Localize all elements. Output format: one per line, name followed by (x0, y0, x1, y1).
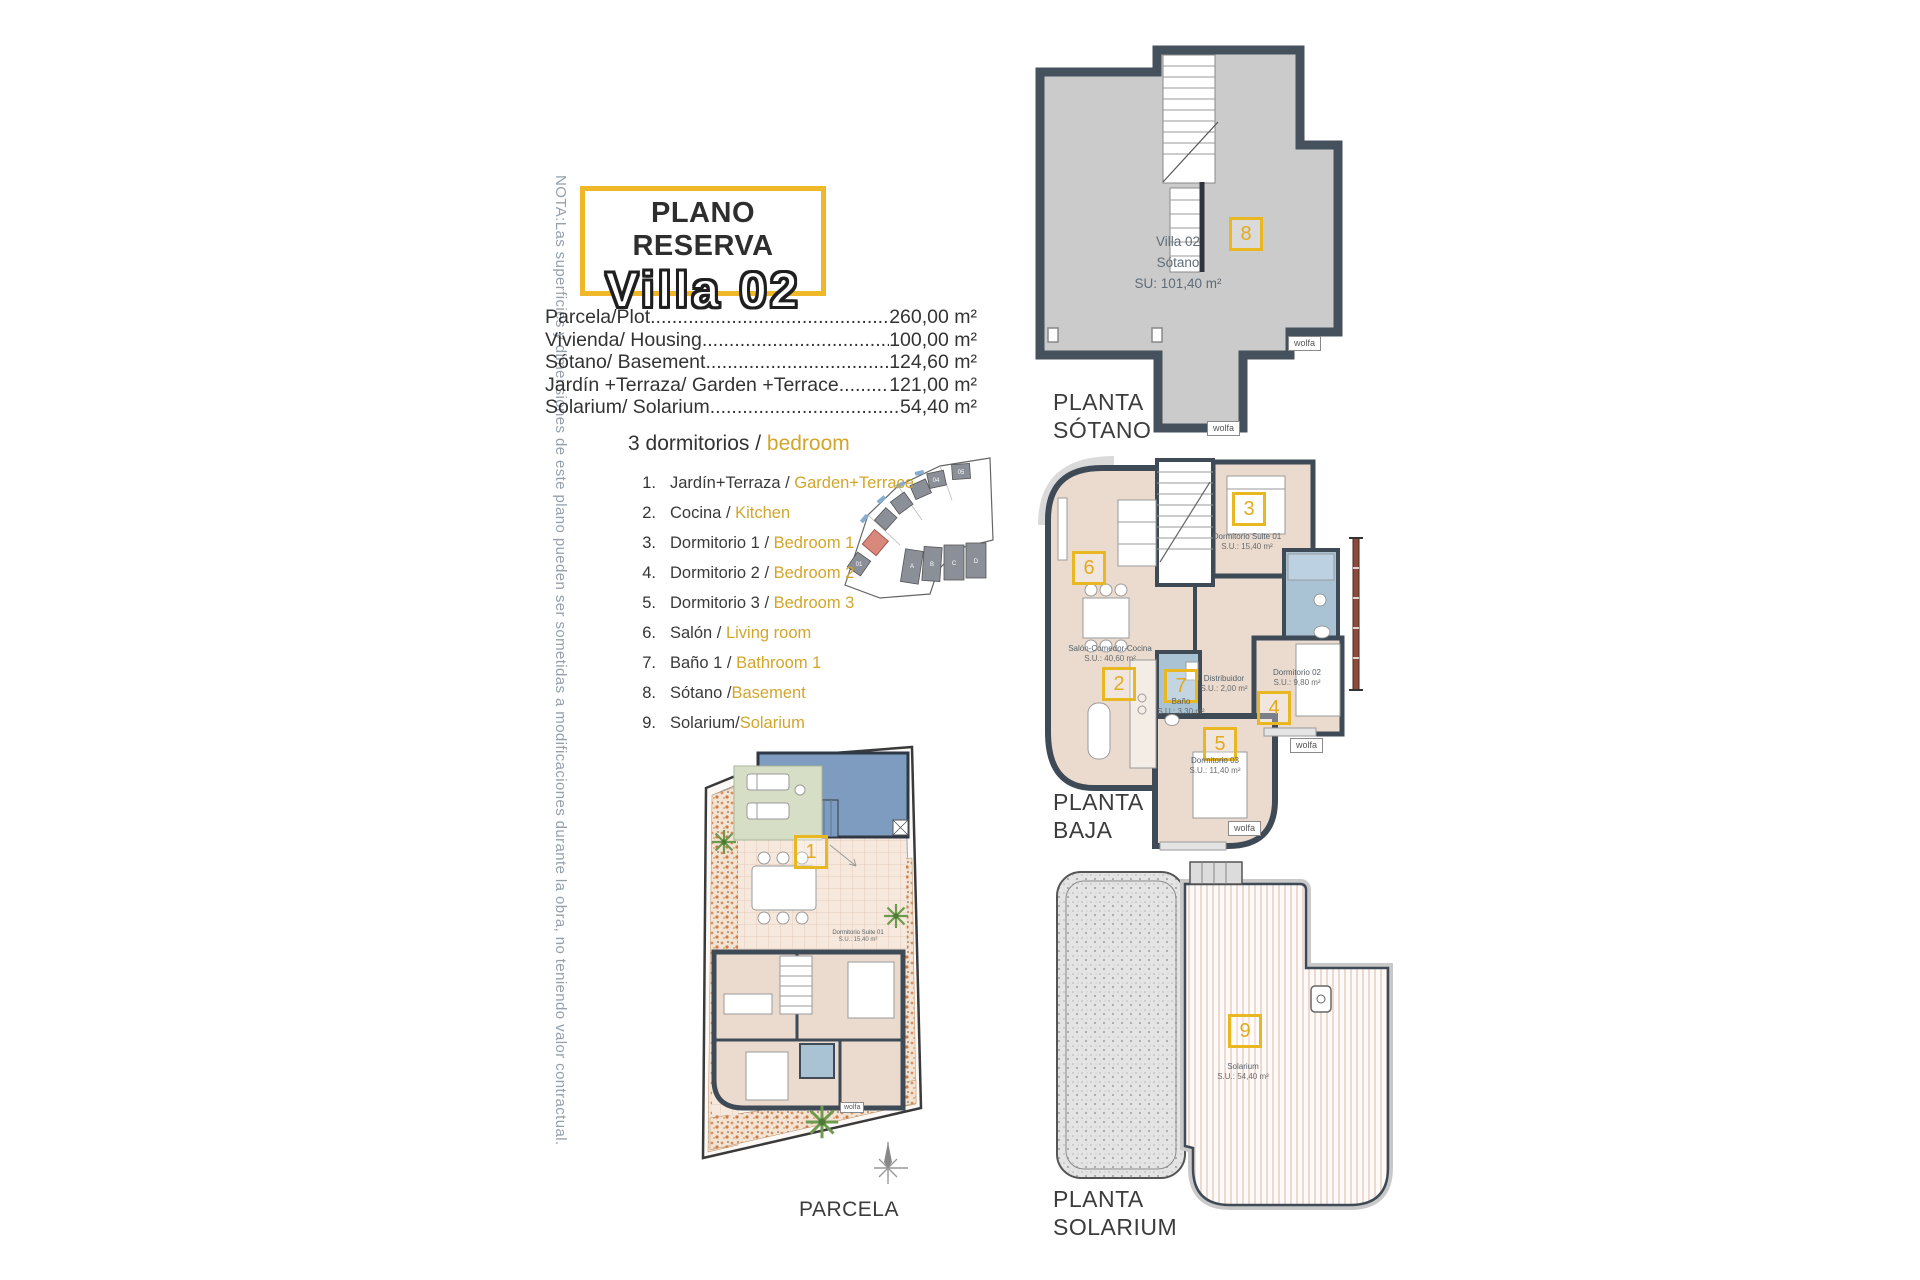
label-line: SU: 101,40 m² (1108, 274, 1248, 295)
title-box: PLANO RESERVA Villa 02 (580, 186, 826, 296)
area-summary: Parcela/Plot 260,00 m² Vivienda/ Housing… (545, 306, 977, 419)
window-sill (1264, 728, 1316, 736)
room-label-suite: Dormitorio Suite 01 S.U.: 15,40 m² (1197, 532, 1297, 553)
room-label-bath: Baño S.U.: 3,30 m² (1151, 697, 1211, 718)
room-area: S.U.: 54,40 m² (1193, 1072, 1293, 1082)
room-area: S.U.: 3,30 m² (1151, 707, 1211, 717)
room-name: Solarium (1193, 1062, 1293, 1072)
minimap-label: 05 (958, 470, 965, 476)
tv-unit-icon (1058, 498, 1067, 560)
legend-en: Bedroom 3 (774, 594, 855, 612)
summary-value: 124,60 m² (889, 351, 977, 374)
sofa-icon (1118, 500, 1156, 566)
legend-num: 9. (628, 708, 656, 738)
legend-en: Living room (726, 624, 811, 642)
room-name: Dormitorio 02 (1257, 668, 1337, 678)
room-area: S.U.: 11,40 m² (1165, 766, 1265, 776)
legend-en: Bedroom 1 (774, 534, 855, 552)
legend-num: 2. (628, 498, 656, 528)
brand-logo: wolfa (1207, 421, 1240, 436)
legend-num: 6. (628, 618, 656, 648)
brand-logo: wolfa (840, 1102, 864, 1113)
legend-es: Jardín+Terraza / (670, 474, 794, 492)
room-area: S.U.: 15,40 m² (1197, 542, 1297, 552)
minimap-label: C (952, 561, 957, 567)
room-name: Dormitorio Suite 01 (1197, 532, 1297, 542)
legend-item: 6.Salón / Living room (628, 618, 914, 648)
legend-num: 5. (628, 588, 656, 618)
plot-plan (703, 747, 921, 1184)
badge-garden-1: 1 (794, 835, 828, 869)
room-name: Dormitorio Suite 01 (823, 930, 893, 937)
dot-leader (710, 396, 900, 419)
summary-value: 54,40 m² (900, 396, 977, 419)
brand-logo: wolfa (1290, 738, 1323, 753)
legend-item: 2.Cocina / Kitchen (628, 498, 914, 528)
sun-loungers (734, 766, 822, 840)
dot-leader (839, 374, 889, 397)
summary-label: Vivienda/ Housing (545, 329, 702, 352)
legend-es: Salón / (670, 624, 726, 642)
legend-num: 1. (628, 468, 656, 498)
sink-icon (1314, 594, 1326, 606)
minimap-label: B (930, 562, 934, 568)
room-legend: 3 dormitorios / bedroom 1.Jardín+Terraza… (628, 432, 914, 738)
dot-leader (705, 351, 889, 374)
minimap-label: 04 (933, 478, 940, 484)
room-name: Distribuidor (1189, 674, 1259, 684)
solarium-room-label: Solarium S.U.: 54,40 m² (1193, 1062, 1293, 1083)
floor-plans-canvas: 01 04 05 A B C D (0, 0, 1920, 1280)
legend-es: Dormitorio 2 / (670, 564, 774, 582)
basement-room-label: Villa 02 Sótano SU: 101,40 m² (1108, 232, 1248, 295)
caption-line: PLANTA (1053, 788, 1144, 816)
summary-value: 100,00 m² (889, 329, 977, 352)
brand-logo: wolfa (1288, 336, 1321, 351)
summary-row: Jardín +Terraza/ Garden +Terrace 121,00 … (545, 374, 977, 397)
room-label-parcela-suite: Dormitorio Suite 01 S.U.: 15,40 m² (823, 930, 893, 944)
dining-table-icon (1083, 598, 1129, 638)
summary-label: Jardín +Terraza/ Garden +Terrace (545, 374, 839, 397)
compass-icon (874, 1142, 908, 1184)
caption-line: SOLARIUM (1053, 1213, 1177, 1241)
summary-label: Sótano/ Basement (545, 351, 705, 374)
legend-num: 8. (628, 678, 656, 708)
section-marker (1349, 538, 1363, 690)
stairs-icon (1157, 460, 1213, 585)
summary-row: Sótano/ Basement 124,60 m² (545, 351, 977, 374)
basement-column (1152, 328, 1162, 342)
legend-num: 3. (628, 528, 656, 558)
legend-title-en: bedroom (767, 432, 850, 455)
room-label-bedroom3: Dormitorio 03 S.U.: 11,40 m² (1165, 756, 1265, 777)
room-label-living: Salón-Comedor-Cocina S.U.: 40,60 m² (1060, 644, 1160, 665)
caption-line: PLANTA (1053, 1185, 1177, 1213)
kitchen-island-icon (1088, 703, 1110, 759)
legend-en: Bedroom 2 (774, 564, 855, 582)
lower-roof (1057, 872, 1185, 1178)
legend-num: 7. (628, 648, 656, 678)
caption-line: SÓTANO (1053, 416, 1151, 444)
legend-en: Bathroom 1 (736, 654, 821, 672)
label-line: Villa 02 (1108, 232, 1248, 253)
room-area: S.U.: 15,40 m² (823, 937, 893, 944)
legend-item: 7.Baño 1 / Bathroom 1 (628, 648, 914, 678)
legend-item: 3.Dormitorio 1 / Bedroom 1 (628, 528, 914, 558)
badge-kitchen-2: 2 (1102, 667, 1136, 701)
badge-living-6: 6 (1072, 551, 1106, 585)
minimap-label: D (974, 559, 979, 565)
legend-es: Dormitorio 3 / (670, 594, 774, 612)
legend-title-es: 3 dormitorios / (628, 432, 767, 455)
label-line: Sótano (1108, 253, 1248, 274)
room-area: S.U.: 9,80 m² (1257, 678, 1337, 688)
legend-num: 4. (628, 558, 656, 588)
legend-item: 5.Dormitorio 3 / Bedroom 3 (628, 588, 914, 618)
legend-en: Basement (731, 684, 805, 702)
legend-es: Cocina / (670, 504, 735, 522)
caption-parcela: PARCELA (799, 1196, 899, 1224)
basement-column (1048, 328, 1058, 342)
legend-es: Sótano / (670, 684, 731, 702)
caption-planta-sotano: PLANTA SÓTANO (1053, 388, 1151, 444)
summary-row: Solarium/ Solarium 54,40 m² (545, 396, 977, 419)
plan-kicker: PLANO RESERVA (585, 197, 821, 263)
solarium-deck (1185, 884, 1388, 1205)
shower-icon (1288, 554, 1334, 580)
caption-line: BAJA (1053, 816, 1144, 844)
brand-logo: wolfa (1228, 821, 1261, 836)
legend-item: 1.Jardín+Terraza / Garden+Terrace (628, 468, 914, 498)
summary-label: Solarium/ Solarium (545, 396, 710, 419)
legend-title: 3 dormitorios / bedroom (628, 432, 914, 456)
house-footprint (714, 952, 903, 1108)
badge-bedroom2-4: 4 (1257, 691, 1291, 725)
stair-head (1190, 862, 1242, 884)
legend-en: Garden+Terrace (794, 474, 914, 492)
roof-unit-icon (1311, 986, 1331, 1012)
room-name: Dormitorio 03 (1165, 756, 1265, 766)
summary-label: Parcela/Plot (545, 306, 650, 329)
summary-value: 260,00 m² (889, 306, 977, 329)
badge-bedroom1-3: 3 (1232, 492, 1266, 526)
toilet-icon (1314, 626, 1330, 638)
room-label-hall: Distribuidor S.U.: 2,00 m² (1189, 674, 1259, 695)
summary-row: Parcela/Plot 260,00 m² (545, 306, 977, 329)
legend-es: Solarium/ (670, 714, 740, 732)
legend-items: 1.Jardín+Terraza / Garden+Terrace 2.Coci… (628, 468, 914, 738)
room-name: Salón-Comedor-Cocina (1060, 644, 1160, 654)
legend-en: Solarium (740, 714, 805, 732)
summary-value: 121,00 m² (889, 374, 977, 397)
legend-es: Dormitorio 1 / (670, 534, 774, 552)
dot-leader (702, 329, 889, 352)
window-sill (1160, 842, 1226, 850)
caption-planta-baja: PLANTA BAJA (1053, 788, 1144, 844)
room-area: S.U.: 40,60 m² (1060, 654, 1160, 664)
caption-line: PLANTA (1053, 388, 1151, 416)
summary-row: Vivienda/ Housing 100,00 m² (545, 329, 977, 352)
room-area: S.U.: 2,00 m² (1189, 684, 1259, 694)
legend-item: 9.Solarium/Solarium (628, 708, 914, 738)
legend-item: 4.Dormitorio 2 / Bedroom 2 (628, 558, 914, 588)
dot-leader (650, 306, 889, 329)
room-label-bedroom2: Dormitorio 02 S.U.: 9,80 m² (1257, 668, 1337, 689)
legend-en: Kitchen (735, 504, 790, 522)
badge-solarium-9: 9 (1228, 1014, 1262, 1048)
solarium-plan (1057, 862, 1388, 1205)
room-name: Baño (1151, 697, 1211, 707)
legend-es: Baño 1 / (670, 654, 736, 672)
legend-item: 8.Sótano /Basement (628, 678, 914, 708)
caption-planta-solarium: PLANTA SOLARIUM (1053, 1185, 1177, 1241)
